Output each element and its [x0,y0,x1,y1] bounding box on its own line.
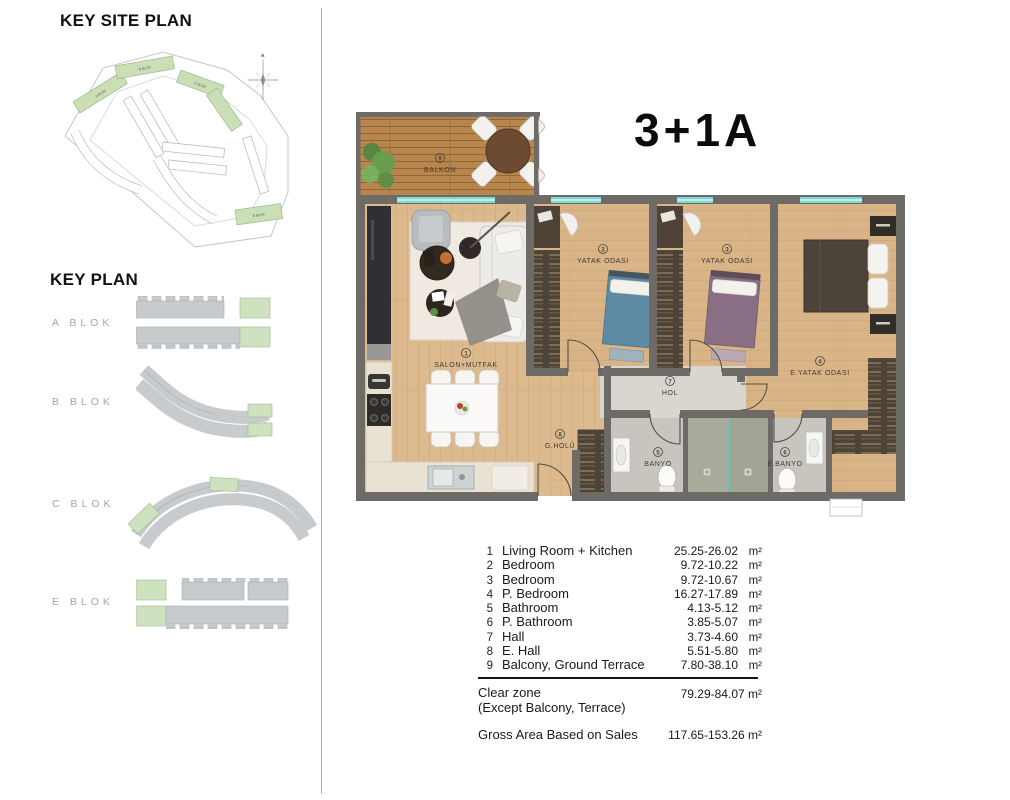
row-name: E. Hall [493,643,652,658]
key-plan-label-a: A BLOK [52,317,113,329]
row-unit: m² [738,632,762,644]
legend-row: 9 Balcony, Ground Terrace 7.80-38.10 m² [478,657,762,671]
key-plan-label-c: C BLOK [52,498,115,510]
key-plan-c-footprint [124,474,320,555]
row-area: 3.73-4.60 [652,630,738,644]
row-name: Living Room + Kitchen [493,543,652,558]
legend-row: 4 P. Bedroom 16.27-17.89 m² [478,586,762,600]
row-area: 25.25-26.02 [652,544,738,558]
row-area: 3.85-5.07 [652,615,738,629]
svg-text:HOL: HOL [662,390,678,397]
master-wardrobe-bottom [826,430,896,454]
armchair [412,210,450,250]
row-unit: m² [738,546,762,558]
key-plan-heading: KEY PLAN [50,270,138,290]
row-unit: m² [738,603,762,615]
sink [428,466,474,489]
row-unit: m² [738,617,762,629]
key-plan-a-footprint [136,296,274,359]
compass-north-label: K [261,53,265,58]
row-name: P. Bedroom [493,586,652,601]
row-unit: m² [738,560,762,572]
row-unit: m² [738,575,762,587]
row-name: Bathroom [493,600,652,615]
key-plan-b-footprint [136,356,274,455]
row-area: 16.27-17.89 [652,587,738,601]
svg-text:E.YATAK ODASI: E.YATAK ODASI [790,370,850,377]
ac-unit [830,499,862,516]
site-plan: A BLOK B BLOK C BLOK E BLOK K [45,40,295,260]
dishwasher [492,466,528,490]
legend-row: 3 Bedroom 9.72-10.67 m² [478,572,762,586]
legend-divider [478,677,758,680]
gross-area-value: 117.65-153.26 m² [668,728,762,742]
floor-plan-page: { "left_panel": { "site_plan_heading": "… [0,0,1010,800]
site-plan-heading: KEY SITE PLAN [60,11,192,31]
row-area: 4.13-5.12 [652,601,738,615]
key-plan-label-e: E BLOK [52,596,114,608]
legend-row: 7 Hall 3.73-4.60 m² [478,629,762,643]
legend-row: 5 Bathroom 4.13-5.12 m² [478,600,762,614]
clear-zone-sub: (Except Balcony, Terrace) [478,701,681,716]
legend-row: 2 Bedroom 9.72-10.22 m² [478,557,762,571]
gross-area-label: Gross Area Based on Sales [478,727,668,742]
floor-plan-drawing: 9 BALKON 1 SALON+MUTFAK 2 YATAK ODASI 3 … [350,100,915,540]
row-name: Hall [493,629,652,644]
clear-zone-label: Clear zone [478,686,681,701]
row-name: Bedroom [493,557,652,572]
row-unit: m² [738,589,762,601]
svg-text:SALON+MUTFAK: SALON+MUTFAK [434,362,497,369]
key-plan-label-b: B BLOK [52,396,114,408]
bedroom3-wardrobe [657,250,683,370]
row-name: Bedroom [493,572,652,587]
row-no: 7 [478,632,493,644]
row-no: 5 [478,603,493,615]
row-no: 2 [478,560,493,572]
legend-row: 1 Living Room + Kitchen 25.25-26.02 m² [478,543,762,557]
svg-text:YATAK ODASI: YATAK ODASI [577,258,629,265]
svg-text:YATAK ODASI: YATAK ODASI [701,258,753,265]
clear-zone-block: Clear zone (Except Balcony, Terrace) 79.… [478,686,762,715]
gross-area-block: Gross Area Based on Sales 117.65-153.26 … [478,727,762,742]
legend-row: 8 E. Hall 5.51-5.80 m² [478,643,762,657]
bath-toilet [658,465,676,489]
legend-row: 6 P. Bathroom 3.85-5.07 m² [478,614,762,628]
row-no: 8 [478,646,493,658]
row-area: 9.72-10.22 [652,558,738,572]
row-no: 3 [478,575,493,587]
svg-text:BALKON: BALKON [424,167,456,174]
kitchen-counter-left [366,362,392,462]
kitchen-counter-bottom [366,462,534,493]
row-unit: m² [738,660,762,672]
panel-divider [321,8,322,794]
master-bath-toilet [778,468,796,492]
area-legend: 1 Living Room + Kitchen 25.25-26.02 m² 2… [478,543,762,742]
shower-stall-1-floor [688,418,730,493]
row-no: 1 [478,546,493,558]
svg-text:G.HOLÜ: G.HOLÜ [545,442,575,450]
row-no: 6 [478,617,493,629]
tv-unit [367,206,391,360]
key-plan-e-footprint [136,578,290,635]
row-area: 9.72-10.67 [652,573,738,587]
bedroom2-wardrobe [534,250,560,370]
row-area: 7.80-38.10 [652,658,738,672]
entry-closet [578,430,604,492]
row-no: 4 [478,589,493,601]
row-unit: m² [738,646,762,658]
svg-text:E.BANYO: E.BANYO [767,461,802,468]
clear-zone-value: 79.29-84.07 m² [681,686,762,715]
row-name: Balcony, Ground Terrace [493,657,652,672]
shower-stall-2-floor [730,418,768,493]
svg-text:BANYO: BANYO [644,461,672,468]
row-name: P. Bathroom [493,614,652,629]
row-no: 9 [478,660,493,672]
dining-set [426,370,499,447]
row-area: 5.51-5.80 [652,644,738,658]
stove [367,394,391,426]
